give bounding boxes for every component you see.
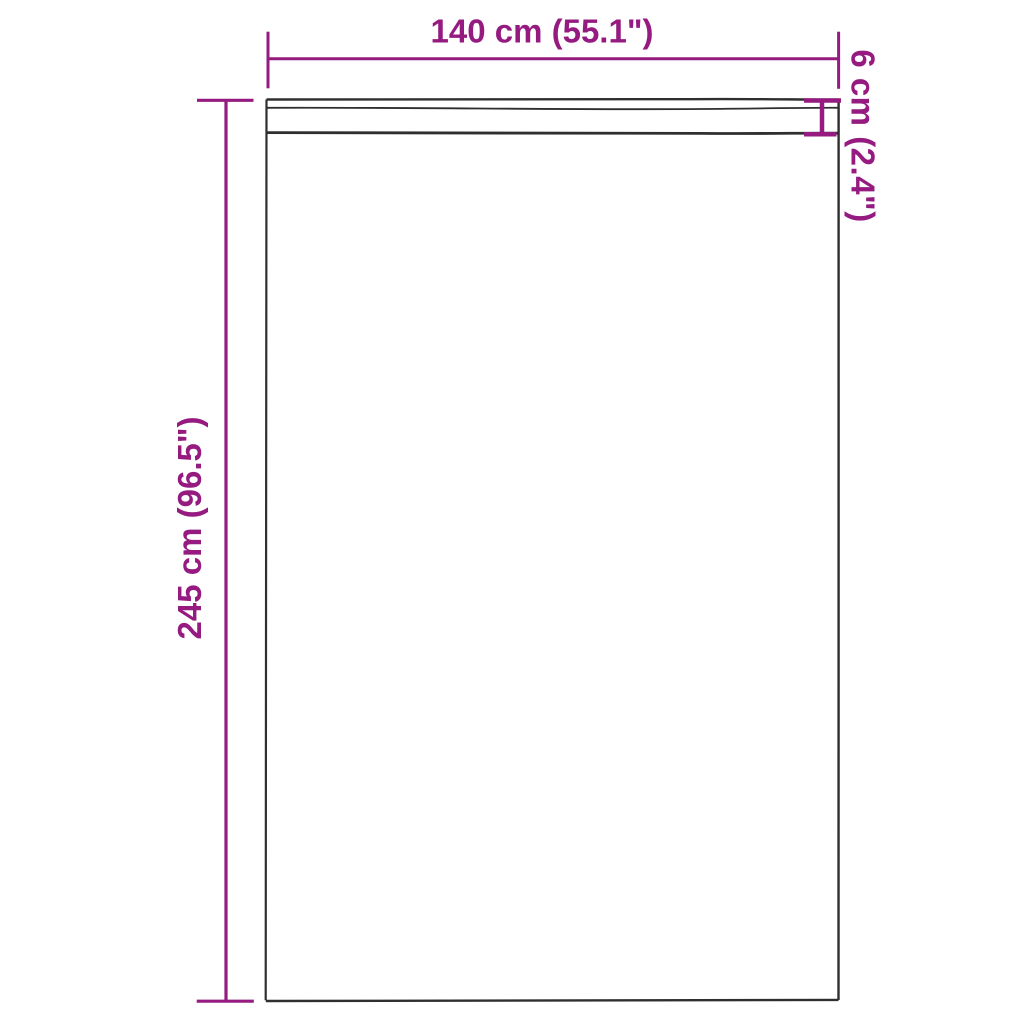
svg-text:6 cm (2.4"): 6 cm (2.4") [845,49,882,222]
svg-text:140 cm (55.1"): 140 cm (55.1") [431,12,654,49]
svg-text:245 cm (96.5"): 245 cm (96.5") [171,417,208,640]
